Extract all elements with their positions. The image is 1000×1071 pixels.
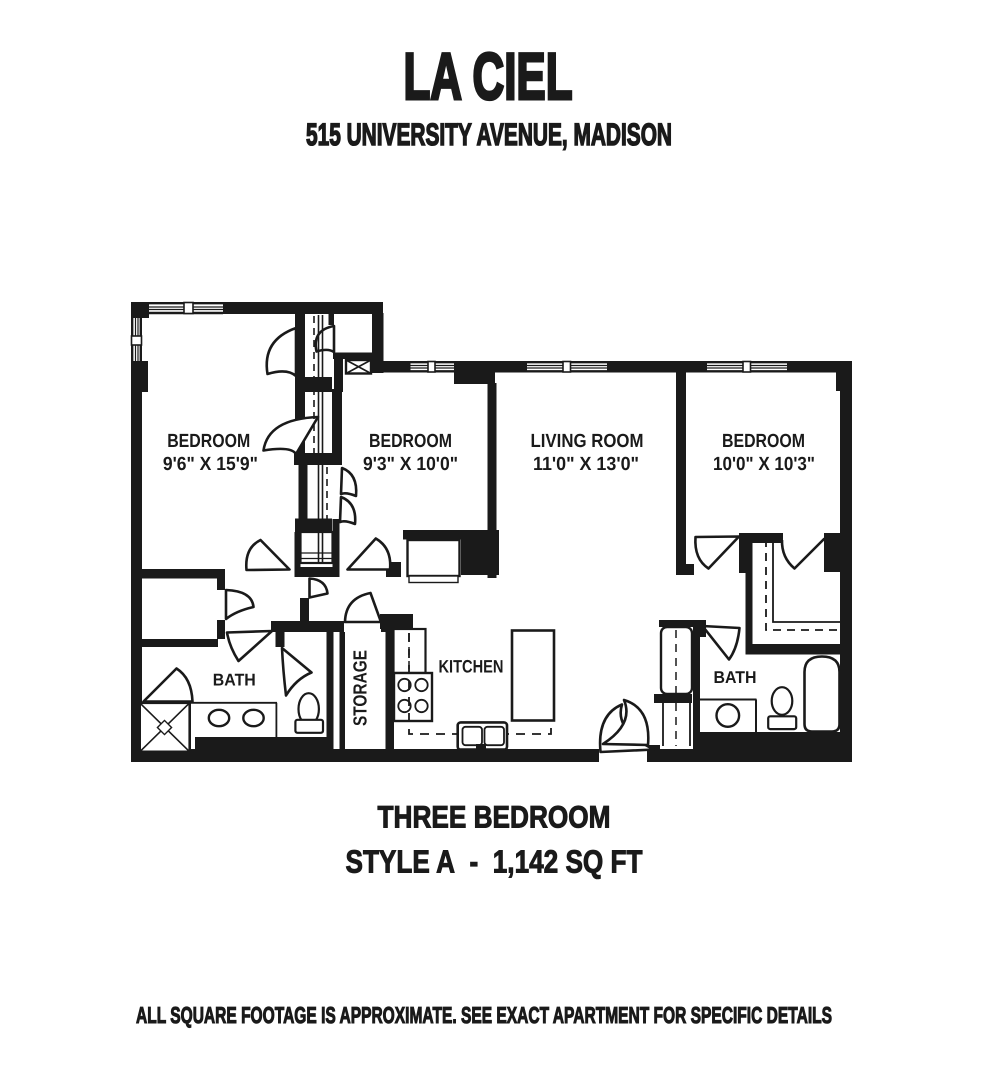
- svg-text:9'3" X 10'0": 9'3" X 10'0": [363, 454, 458, 475]
- svg-text:LA CIEL: LA CIEL: [404, 39, 573, 113]
- svg-text:ALL SQUARE FOOTAGE IS APPROXIM: ALL SQUARE FOOTAGE IS APPROXIMATE. SEE E…: [136, 1002, 832, 1028]
- svg-text:BEDROOM: BEDROOM: [167, 431, 250, 452]
- svg-text:BATH: BATH: [714, 668, 757, 687]
- svg-text:KITCHEN: KITCHEN: [439, 657, 504, 677]
- svg-text:LIVING ROOM: LIVING ROOM: [531, 431, 644, 452]
- svg-text:STORAGE: STORAGE: [351, 650, 372, 726]
- svg-text:9'6" X 15'9": 9'6" X 15'9": [163, 454, 258, 475]
- svg-text:THREE BEDROOM: THREE BEDROOM: [378, 800, 611, 835]
- svg-text:BATH: BATH: [213, 671, 256, 690]
- svg-text:11'0" X 13'0": 11'0" X 13'0": [533, 454, 639, 475]
- svg-text:515 UNIVERSITY AVENUE, MADISON: 515 UNIVERSITY AVENUE, MADISON: [306, 117, 672, 152]
- svg-text:STYLE A - 1,142 SQ FT: STYLE A - 1,142 SQ FT: [346, 844, 643, 880]
- svg-text:BEDROOM: BEDROOM: [722, 431, 805, 452]
- svg-text:BEDROOM: BEDROOM: [369, 431, 452, 452]
- svg-text:10'0" X 10'3": 10'0" X 10'3": [713, 454, 815, 475]
